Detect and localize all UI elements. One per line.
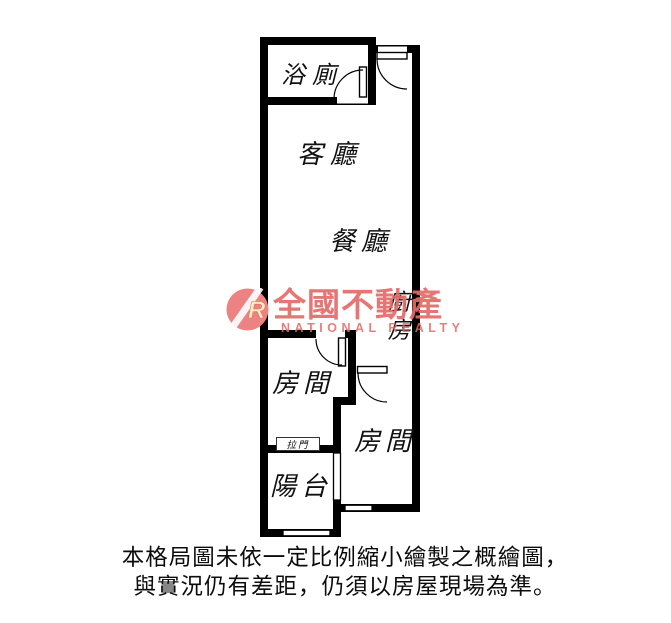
room-label-balcony: 陽台 bbox=[270, 474, 332, 501]
room-label-bedroom-2: 房間 bbox=[354, 429, 416, 456]
disclaimer-line-1: 本格局圖未依一定比例縮小繪製之概繪圖， bbox=[20, 544, 670, 573]
room-label-bathroom: 浴廁 bbox=[281, 63, 343, 88]
watermark-brand-en: NATIONAL REALTY bbox=[281, 322, 461, 335]
disclaimer-text: 本格局圖未依一定比例縮小繪製之概繪圖， 與實況仍有差距，仍須以房屋現場為準。 bbox=[20, 544, 670, 602]
bedroom1-door bbox=[316, 338, 346, 366]
sliding-door-marker: 拉門 bbox=[276, 437, 320, 451]
room-label-dining-room: 餐廳 bbox=[329, 229, 393, 256]
window-balcony bbox=[283, 530, 330, 536]
disclaimer-line-2: 與實況仍有差距，仍須以房屋現場為準。 bbox=[20, 573, 670, 602]
svg-text:R: R bbox=[248, 297, 266, 324]
room-label-living-room: 客廳 bbox=[297, 142, 363, 169]
watermark-brand-zh: 全國不動產 bbox=[273, 288, 453, 321]
realty-logo-icon: R bbox=[226, 288, 269, 331]
bedroom2-door bbox=[358, 367, 388, 403]
entrance-door bbox=[377, 53, 407, 90]
window-bedroom2 bbox=[345, 505, 372, 511]
room-label-bedroom-1: 房間 bbox=[272, 371, 334, 398]
floor-plan-image: 浴廁 客廳 餐廳 廚房 房間 房間 陽台 拉門 R 全國不動產 NATIONAL… bbox=[0, 0, 671, 623]
window-balcony-bedroom bbox=[334, 453, 341, 500]
